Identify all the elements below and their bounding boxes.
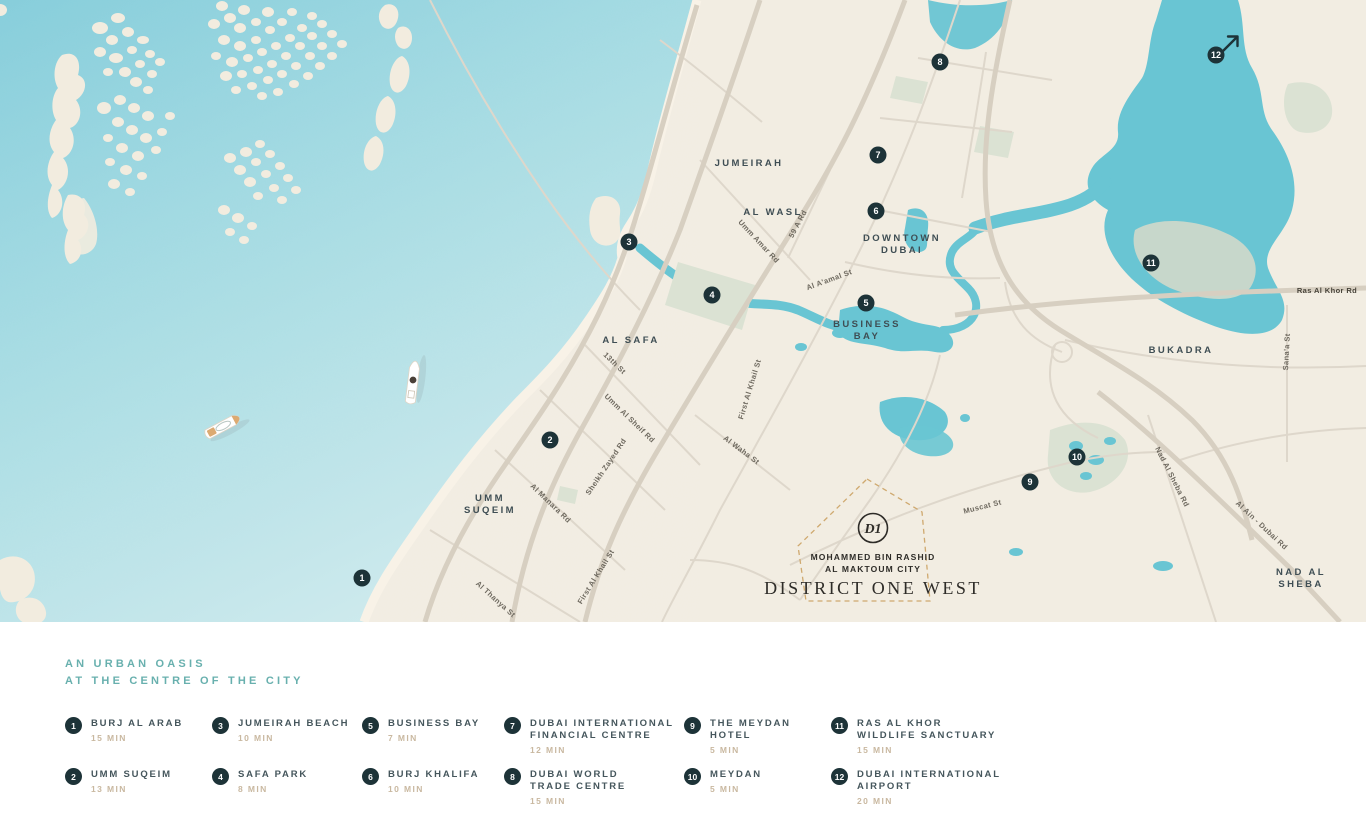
legend-item-text: UMM SUQEIM13 MIN xyxy=(91,769,172,794)
legend-item-time: 12 MIN xyxy=(530,745,674,755)
legend-item-2[interactable]: 2UMM SUQEIM13 MIN xyxy=(65,769,212,806)
legend-item-7[interactable]: 7DUBAI INTERNATIONALFINANCIAL CENTRE12 M… xyxy=(504,718,684,755)
legend-item-name: BUSINESS BAY xyxy=(388,718,480,730)
legend-item-4[interactable]: 4SAFA PARK8 MIN xyxy=(212,769,362,806)
map-marker-4[interactable]: 4 xyxy=(704,287,721,304)
map-marker-5[interactable]: 5 xyxy=(858,295,875,312)
legend-item-9[interactable]: 9THE MEYDANHOTEL5 MIN xyxy=(684,718,831,755)
legend-item-1[interactable]: 1BURJ AL ARAB15 MIN xyxy=(65,718,212,755)
svg-text:3: 3 xyxy=(626,237,631,247)
legend-item-name: BURJ KHALIFA xyxy=(388,769,479,781)
canal-mouth-island xyxy=(589,196,620,246)
map-marker-7[interactable]: 7 xyxy=(870,147,887,164)
legend-grid: 1BURJ AL ARAB15 MIN2UMM SUQEIM13 MIN3JUM… xyxy=(65,718,1071,806)
legend-item-number: 7 xyxy=(504,717,521,734)
svg-text:7: 7 xyxy=(875,150,880,160)
legend-item-time: 5 MIN xyxy=(710,745,791,755)
legend-heading: AN URBAN OASIS AT THE CENTRE OF THE CITY xyxy=(65,656,304,690)
svg-text:4: 4 xyxy=(709,290,714,300)
area-label: AL WASL xyxy=(743,207,802,218)
legend-item-text: MEYDAN5 MIN xyxy=(710,769,762,794)
legend-item-number: 12 xyxy=(831,768,848,785)
legend-item-time: 10 MIN xyxy=(238,733,349,743)
legend-item-number: 8 xyxy=(504,768,521,785)
legend-item-name: BURJ AL ARAB xyxy=(91,718,183,730)
legend-item-text: BURJ AL ARAB15 MIN xyxy=(91,718,183,743)
legend-item-text: THE MEYDANHOTEL5 MIN xyxy=(710,718,791,755)
legend-item-6[interactable]: 6BURJ KHALIFA10 MIN xyxy=(362,769,504,806)
legend-item-number: 6 xyxy=(362,768,379,785)
legend-item-name: DUBAI INTERNATIONALAIRPORT xyxy=(857,769,1001,793)
legend-heading-line2: AT THE CENTRE OF THE CITY xyxy=(65,673,304,690)
legend-heading-line1: AN URBAN OASIS xyxy=(65,656,304,673)
logo-line1: MOHAMMED BIN RASHID xyxy=(811,552,936,562)
area-label: AL SAFA xyxy=(602,335,659,346)
legend-item-name: MEYDAN xyxy=(710,769,762,781)
legend-item-number: 4 xyxy=(212,768,229,785)
legend-item-name: JUMEIRAH BEACH xyxy=(238,718,349,730)
legend-item-text: DUBAI INTERNATIONALFINANCIAL CENTRE12 MI… xyxy=(530,718,674,755)
svg-text:1: 1 xyxy=(359,573,364,583)
map-marker-8[interactable]: 8 xyxy=(932,54,949,71)
svg-text:5: 5 xyxy=(863,298,868,308)
legend-item-name: DUBAI INTERNATIONALFINANCIAL CENTRE xyxy=(530,718,674,742)
legend-item-number: 11 xyxy=(831,717,848,734)
legend-item-number: 10 xyxy=(684,768,701,785)
legend-item-time: 10 MIN xyxy=(388,784,479,794)
legend-item-time: 20 MIN xyxy=(857,796,1001,806)
svg-text:11: 11 xyxy=(1146,258,1156,268)
legend-item-text: DUBAI INTERNATIONALAIRPORT20 MIN xyxy=(857,769,1001,806)
legend-item-text: DUBAI WORLDTRADE CENTRE15 MIN xyxy=(530,769,626,806)
svg-text:12: 12 xyxy=(1211,50,1221,60)
legend-panel: AN URBAN OASIS AT THE CENTRE OF THE CITY… xyxy=(0,622,1366,817)
svg-text:6: 6 xyxy=(873,206,878,216)
legend-item-name: SAFA PARK xyxy=(238,769,308,781)
map-marker-6[interactable]: 6 xyxy=(868,203,885,220)
legend-item-number: 1 xyxy=(65,717,82,734)
map-marker-11[interactable]: 11 xyxy=(1143,255,1160,272)
map-marker-10[interactable]: 10 xyxy=(1069,449,1086,466)
road-label: Ras Al Khor Rd xyxy=(1297,286,1357,295)
area-label: NAD ALSHEBA xyxy=(1276,567,1326,590)
area-label: BUKADRA xyxy=(1149,345,1214,356)
svg-text:10: 10 xyxy=(1072,452,1082,462)
logo-monogram: D1 xyxy=(863,522,881,537)
legend-item-time: 15 MIN xyxy=(91,733,183,743)
legend-item-text: BUSINESS BAY7 MIN xyxy=(388,718,480,743)
svg-text:2: 2 xyxy=(547,435,552,445)
map-marker-9[interactable]: 9 xyxy=(1022,474,1039,491)
legend-item-time: 15 MIN xyxy=(857,745,996,755)
legend-item-name: UMM SUQEIM xyxy=(91,769,172,781)
legend-item-name: RAS AL KHORWILDLIFE SANCTUARY xyxy=(857,718,996,742)
legend-item-name: THE MEYDANHOTEL xyxy=(710,718,791,742)
map-canvas[interactable]: D1 MOHAMMED BIN RASHID AL MAKTOUM CITY D… xyxy=(0,0,1366,622)
legend-item-10[interactable]: 10MEYDAN5 MIN xyxy=(684,769,831,806)
district-one-west-location-map: D1 MOHAMMED BIN RASHID AL MAKTOUM CITY D… xyxy=(0,0,1366,817)
map-marker-3[interactable]: 3 xyxy=(621,234,638,251)
legend-item-text: SAFA PARK8 MIN xyxy=(238,769,308,794)
svg-text:8: 8 xyxy=(937,57,942,67)
legend-item-12[interactable]: 12DUBAI INTERNATIONALAIRPORT20 MIN xyxy=(831,769,1071,806)
legend-item-number: 2 xyxy=(65,768,82,785)
legend-item-11[interactable]: 11RAS AL KHORWILDLIFE SANCTUARY15 MIN xyxy=(831,718,1071,755)
legend-item-number: 5 xyxy=(362,717,379,734)
legend-item-time: 7 MIN xyxy=(388,733,480,743)
legend-item-time: 8 MIN xyxy=(238,784,308,794)
legend-item-3[interactable]: 3JUMEIRAH BEACH10 MIN xyxy=(212,718,362,755)
map-marker-12[interactable]: 12 xyxy=(1208,47,1225,64)
legend-item-time: 5 MIN xyxy=(710,784,762,794)
map-marker-1[interactable]: 1 xyxy=(354,570,371,587)
legend-item-5[interactable]: 5BUSINESS BAY7 MIN xyxy=(362,718,504,755)
legend-item-8[interactable]: 8DUBAI WORLDTRADE CENTRE15 MIN xyxy=(504,769,684,806)
logo-title: District One West xyxy=(764,578,982,598)
legend-item-text: JUMEIRAH BEACH10 MIN xyxy=(238,718,349,743)
map-marker-2[interactable]: 2 xyxy=(542,432,559,449)
legend-item-number: 9 xyxy=(684,717,701,734)
legend-item-name: DUBAI WORLDTRADE CENTRE xyxy=(530,769,626,793)
legend-item-text: RAS AL KHORWILDLIFE SANCTUARY15 MIN xyxy=(857,718,996,755)
legend-item-time: 13 MIN xyxy=(91,784,172,794)
legend-item-time: 15 MIN xyxy=(530,796,626,806)
area-label: JUMEIRAH xyxy=(715,158,784,169)
logo-line2: AL MAKTOUM CITY xyxy=(825,564,921,574)
svg-text:9: 9 xyxy=(1027,477,1032,487)
legend-item-text: BURJ KHALIFA10 MIN xyxy=(388,769,479,794)
legend-item-number: 3 xyxy=(212,717,229,734)
